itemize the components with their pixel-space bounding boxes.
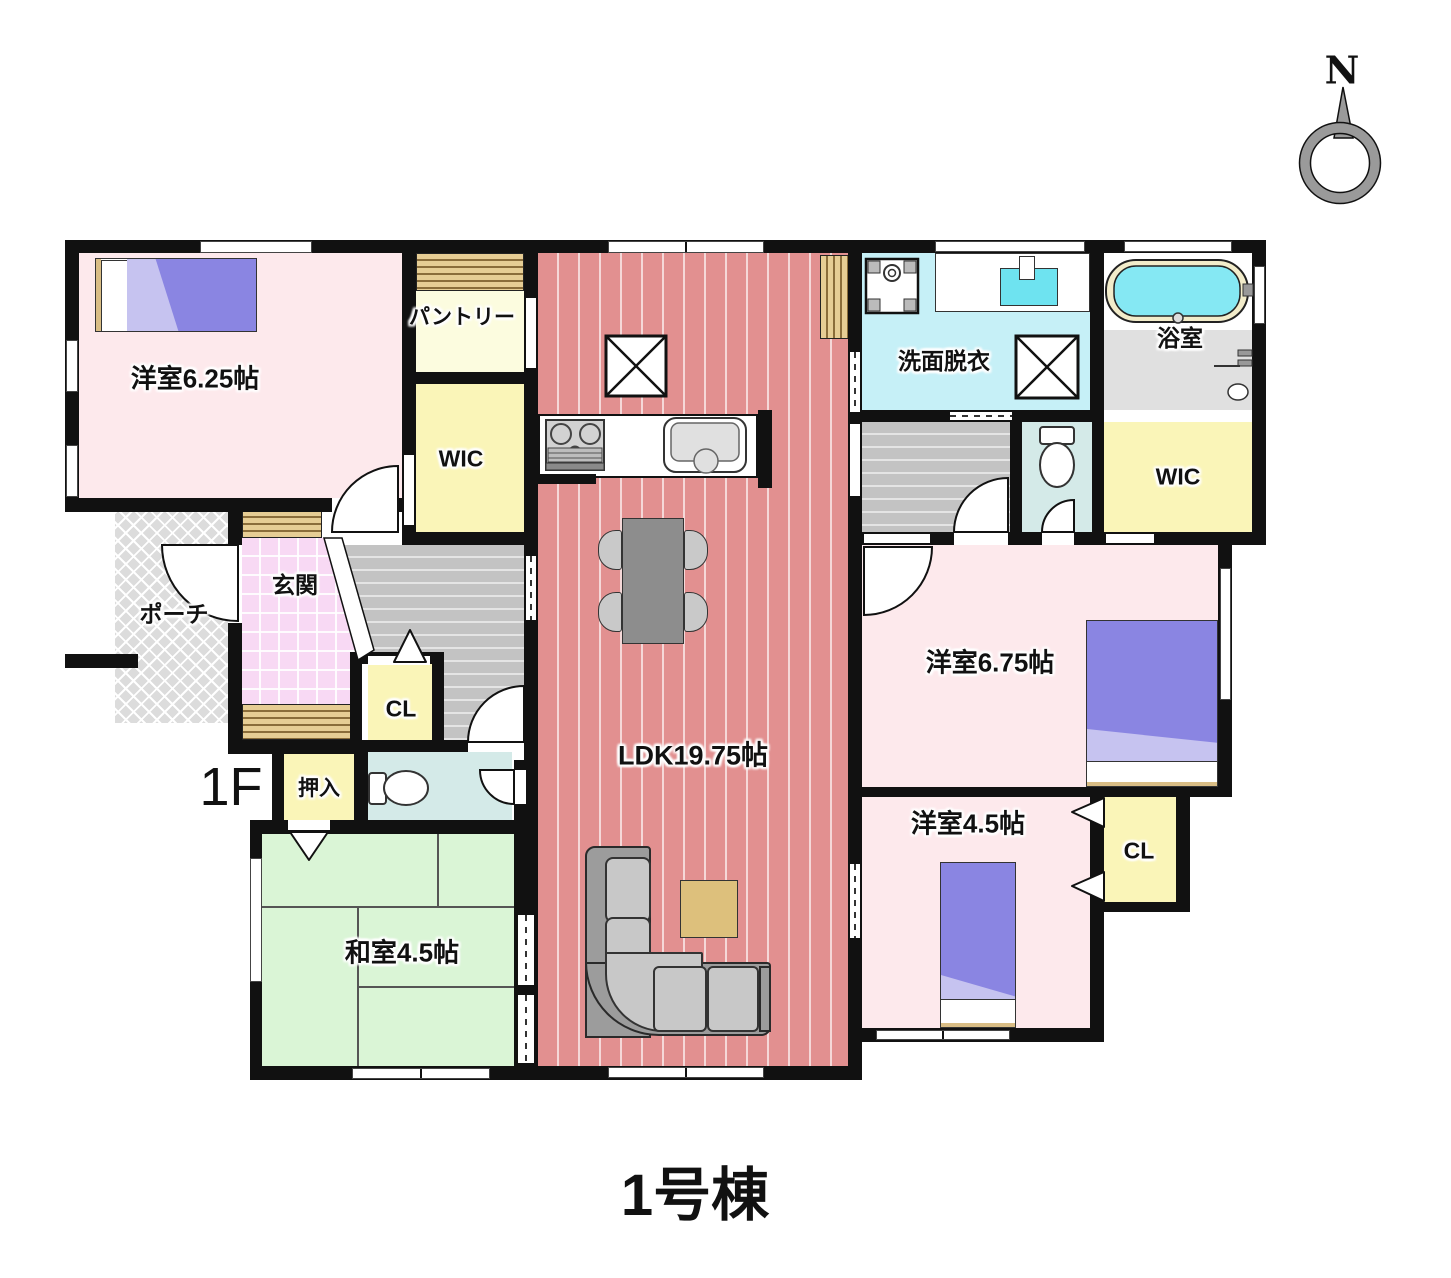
wall <box>1176 787 1190 912</box>
door-opening <box>468 740 524 752</box>
room-label-closet-bottom-right: CL <box>1124 838 1155 865</box>
wall <box>432 652 444 752</box>
wall <box>1090 240 1104 422</box>
door-opening <box>288 820 330 830</box>
window <box>876 1030 1010 1040</box>
room-label-pantry: パントリー <box>409 301 515 331</box>
window <box>1254 266 1265 324</box>
hallway-upper <box>862 422 1010 532</box>
vanity-faucet <box>1019 256 1035 280</box>
sliding-door <box>850 352 860 412</box>
door-opening <box>526 298 536 368</box>
door-opening <box>404 455 414 525</box>
floor-label: 1F <box>199 756 262 818</box>
window <box>608 241 764 253</box>
room-label-oshiire: 押入 <box>298 772 340 802</box>
wall <box>1090 787 1104 912</box>
sofa-cushion <box>707 966 759 1032</box>
sofa-cushion <box>605 857 651 923</box>
entrance-door-leaf <box>228 545 242 623</box>
compass-north-label: N <box>1325 48 1360 93</box>
pantry-shelf <box>416 253 524 291</box>
room-label-wic-right: WIC <box>1156 464 1201 491</box>
sliding-door <box>526 556 536 620</box>
dining-chair <box>598 592 622 632</box>
window <box>200 241 312 253</box>
door-opening <box>514 770 526 804</box>
wall <box>848 787 1232 797</box>
window <box>352 1068 490 1079</box>
door-opening <box>1106 534 1154 543</box>
wall <box>350 652 362 754</box>
sofa-cushion <box>653 966 707 1032</box>
dining-table <box>622 518 684 644</box>
door-opening <box>954 532 1008 545</box>
room-label-western-4-5: 洋室4.5帖 <box>911 804 1025 841</box>
sliding-door <box>518 995 534 1063</box>
bed <box>95 258 257 332</box>
sliding-door <box>518 915 534 985</box>
room-label-japanese: 和室4.5帖 <box>345 933 459 970</box>
room-label-washroom: 洗面脱衣 <box>898 342 990 376</box>
bed <box>1086 620 1218 787</box>
dining-chair <box>598 530 622 570</box>
tatami-line <box>262 906 514 908</box>
window <box>1124 241 1232 252</box>
floor-plan-canvas: 洋室6.25帖 パントリー WIC LDK19.75帖 洗面脱衣 浴室 WIC … <box>0 0 1451 1278</box>
room-label-wic-left: WIC <box>439 446 484 473</box>
wall <box>228 740 362 754</box>
shoe-cabinet-top <box>242 510 322 538</box>
window <box>66 340 78 392</box>
tatami-line <box>357 986 514 988</box>
tatami-line <box>437 834 439 906</box>
page-title: 1号棟 <box>621 1148 769 1232</box>
bed <box>940 862 1016 1028</box>
sliding-door <box>950 412 1012 420</box>
sliding-door <box>850 864 860 938</box>
room-label-entrance: 玄関 <box>272 566 318 600</box>
window <box>608 1067 764 1078</box>
room-label-ldk: LDK19.75帖 <box>618 734 768 773</box>
wall <box>524 240 538 545</box>
wall <box>416 372 524 384</box>
room-label-western-6-75: 洋室6.75帖 <box>926 643 1055 680</box>
coffee-table <box>680 880 738 938</box>
sofa-armrest <box>759 966 771 1032</box>
window <box>250 858 262 982</box>
shoe-cabinet-bottom <box>242 704 360 740</box>
porch-wall-stub <box>65 654 138 668</box>
kitchen-counter <box>538 414 758 478</box>
room-toilet-upper <box>1022 422 1092 532</box>
wall <box>1090 902 1190 912</box>
room-label-closet-hall: CL <box>386 696 417 723</box>
wall <box>1010 422 1022 532</box>
wall <box>1090 912 1104 1042</box>
door-opening <box>332 498 398 512</box>
wall <box>402 532 538 545</box>
room-toilet-lower <box>368 752 512 820</box>
bathtub <box>1106 260 1253 323</box>
window <box>1220 568 1231 700</box>
room-label-western-6-25: 洋室6.25帖 <box>131 359 260 396</box>
room-label-bathroom: 浴室 <box>1157 319 1203 353</box>
door-opening <box>864 534 930 543</box>
ldk-storage-shelf <box>820 255 850 339</box>
window <box>935 241 1085 252</box>
window <box>66 445 78 497</box>
door-opening <box>1042 532 1074 545</box>
wall <box>758 410 772 488</box>
wall <box>538 474 596 484</box>
room-label-porch: ポーチ <box>140 595 209 629</box>
compass-icon <box>1300 87 1381 204</box>
door-opening <box>850 424 860 496</box>
door-opening <box>368 656 430 665</box>
wall <box>1092 422 1104 532</box>
